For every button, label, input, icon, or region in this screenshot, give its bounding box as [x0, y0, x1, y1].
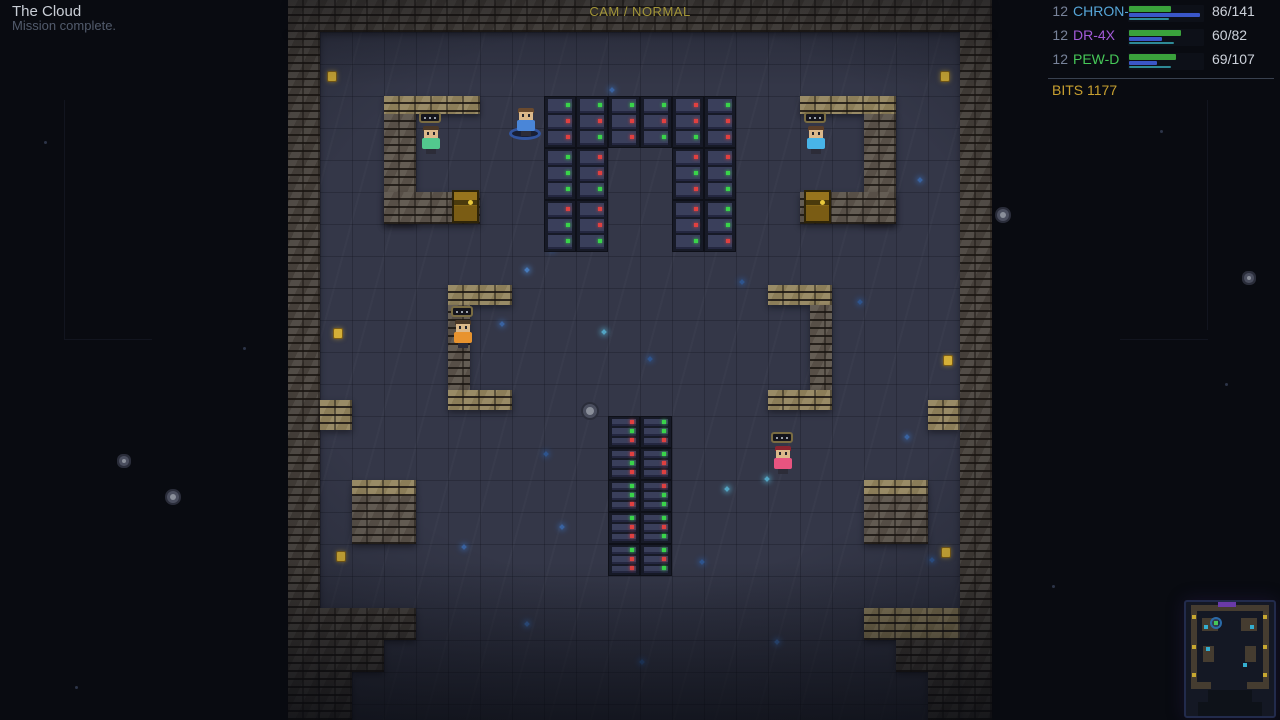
debris-rock [122, 459, 126, 463]
minimap-blip [1243, 663, 1247, 667]
server-slat [644, 534, 668, 541]
chest-band [806, 200, 829, 205]
status-led [566, 187, 570, 191]
background-star [1225, 383, 1228, 386]
server-slat [676, 235, 700, 249]
server-slat [548, 115, 572, 129]
server-slat [676, 219, 700, 233]
status-led [662, 484, 666, 488]
server-rack-unit[interactable] [544, 96, 576, 148]
floor-sparkle [739, 279, 745, 285]
chest-lock [820, 200, 825, 205]
status-led [630, 438, 634, 442]
crew-green[interactable] [418, 112, 444, 158]
character-face [424, 130, 438, 138]
supply-chest[interactable] [452, 190, 479, 223]
server-rack-unit[interactable] [608, 96, 640, 148]
status-led [662, 461, 666, 465]
server-slat [644, 524, 668, 531]
floor-sparkle [543, 451, 549, 457]
floor-sparkle [609, 87, 615, 93]
server-slat [676, 183, 700, 197]
character-torso [422, 138, 440, 149]
floor-sparkle [857, 299, 863, 305]
server-slat [612, 515, 636, 522]
server-slat [644, 99, 668, 113]
status-led [630, 420, 634, 424]
server-rack-unit[interactable] [640, 512, 672, 544]
status-led [630, 534, 634, 538]
status-led [630, 566, 634, 570]
floor-sparkle [639, 659, 645, 665]
stat-bar [1129, 42, 1174, 44]
status-led [662, 548, 666, 552]
server-slat [644, 483, 668, 490]
unit-hp: 86/141 [1212, 3, 1255, 19]
server-slat [548, 219, 572, 233]
status-led [662, 516, 666, 520]
status-led [630, 548, 634, 552]
status-led [694, 135, 698, 139]
status-led [598, 135, 602, 139]
server-slat [644, 470, 668, 477]
game-map[interactable] [288, 0, 992, 720]
server-rack-unit[interactable] [608, 416, 640, 448]
stat-bar [1129, 6, 1171, 12]
status-led [694, 103, 698, 107]
server-rack-unit[interactable] [704, 96, 736, 148]
brick-wall [928, 672, 960, 720]
background-star [1052, 585, 1055, 588]
minimap-void [1198, 702, 1262, 716]
status-led [726, 103, 730, 107]
status-led [630, 470, 634, 474]
debris-rock [586, 407, 594, 415]
party-row[interactable]: 12 DR-4X 60/82 [1048, 27, 1278, 49]
server-slat [676, 131, 700, 145]
status-led [726, 187, 730, 191]
server-slat [612, 438, 636, 445]
background-star [1160, 130, 1163, 133]
server-slat [612, 131, 636, 145]
server-slat [580, 115, 604, 129]
status-led [566, 239, 570, 243]
server-slat [548, 235, 572, 249]
server-slat [676, 115, 700, 129]
status-led [630, 502, 634, 506]
bits-counter: BITS 1177 [1052, 82, 1117, 98]
unit-level: 12 [1048, 27, 1068, 43]
floor-sparkle [917, 177, 923, 183]
server-rack-unit[interactable] [704, 148, 736, 200]
server-slat [548, 131, 572, 145]
server-rack-unit[interactable] [640, 416, 672, 448]
status-led [726, 119, 730, 123]
server-slat [644, 451, 668, 458]
brick-wall [864, 496, 928, 544]
server-slat [580, 151, 604, 165]
server-slat [580, 131, 604, 145]
brick-wall [320, 640, 384, 672]
server-slat [612, 556, 636, 563]
brick-wall [352, 480, 416, 496]
minimap-blip [1204, 625, 1208, 629]
server-slat [612, 502, 636, 509]
unit-name: DR-4X [1073, 27, 1115, 43]
brick-wall [352, 496, 416, 544]
status-led [630, 525, 634, 529]
minimap-player-marker [1210, 617, 1222, 629]
status-led [630, 103, 634, 107]
server-slat [708, 167, 732, 181]
background-star [243, 347, 246, 350]
server-slat [580, 167, 604, 181]
character-torso [774, 458, 792, 469]
server-slat [612, 566, 636, 573]
server-slat [580, 203, 604, 217]
server-slat [676, 99, 700, 113]
server-slat [580, 219, 604, 233]
character-torso [517, 120, 535, 131]
unit-name: PEW-D [1073, 51, 1119, 67]
server-rack-unit[interactable] [704, 200, 736, 252]
minimap-wall [1247, 682, 1269, 689]
status-led [566, 135, 570, 139]
server-slat [708, 219, 732, 233]
status-led [566, 103, 570, 107]
status-led [662, 119, 666, 123]
status-led [662, 452, 666, 456]
floor-sparkle [461, 544, 467, 550]
status-led [566, 207, 570, 211]
brick-wall [928, 400, 960, 430]
server-slat [612, 492, 636, 499]
minimap-wall [1191, 682, 1211, 689]
status-led [694, 239, 698, 243]
character-legs [778, 469, 788, 474]
server-slat [612, 460, 636, 467]
brick-wall [320, 400, 352, 430]
status-led [694, 207, 698, 211]
server-slat [708, 151, 732, 165]
character-torso [807, 138, 825, 149]
server-slat [708, 99, 732, 113]
brick-wall [864, 608, 960, 640]
status-led [662, 493, 666, 497]
server-slat [548, 183, 572, 197]
crew-pink[interactable] [770, 432, 796, 478]
server-slat [708, 131, 732, 145]
server-slat [644, 556, 668, 563]
unit-level: 12 [1048, 51, 1068, 67]
coin-pickup[interactable] [333, 328, 343, 339]
server-slat [612, 428, 636, 435]
status-led [598, 223, 602, 227]
unit-stat-bars [1128, 53, 1204, 70]
status-led [630, 493, 634, 497]
server-rack-unit[interactable] [576, 96, 608, 148]
server-rack-unit[interactable] [640, 96, 672, 148]
status-led [726, 135, 730, 139]
minimap-server-marker [1218, 602, 1236, 607]
backdrop-line [1207, 100, 1208, 330]
status-led [630, 135, 634, 139]
server-slat [708, 235, 732, 249]
server-slat [580, 183, 604, 197]
server-slat [612, 419, 636, 426]
brick-wall [896, 640, 960, 672]
status-led [694, 223, 698, 227]
character-legs [811, 149, 821, 154]
status-led [630, 452, 634, 456]
stat-bar [1129, 66, 1171, 68]
status-led [662, 470, 666, 474]
minimap-blip [1192, 645, 1196, 649]
status-led [566, 119, 570, 123]
server-rack-unit[interactable] [576, 148, 608, 200]
status-led [662, 429, 666, 433]
debris-rock [1247, 276, 1251, 280]
supply-chest[interactable] [804, 190, 831, 223]
server-rack-unit[interactable] [608, 512, 640, 544]
status-led [726, 207, 730, 211]
party-row[interactable]: 12 PEW-D 69/107 [1048, 51, 1278, 73]
brick-wall [768, 285, 832, 305]
stat-bar [1129, 30, 1181, 36]
background-star [44, 141, 47, 144]
status-led [662, 534, 666, 538]
server-slat [548, 151, 572, 165]
coin-pickup[interactable] [940, 71, 950, 82]
server-slat [644, 515, 668, 522]
floor-sparkle [764, 476, 770, 482]
character-face [809, 130, 823, 138]
floor-sparkle [699, 559, 705, 565]
server-slat [644, 438, 668, 445]
minimap-blip [1263, 673, 1267, 677]
coin-pickup[interactable] [327, 71, 337, 82]
status-led [694, 119, 698, 123]
debris-rock [170, 494, 176, 500]
hud-divider [1048, 78, 1274, 79]
floor-sparkle [524, 267, 530, 273]
server-slat [580, 99, 604, 113]
coin-pickup[interactable] [336, 551, 346, 562]
status-led [630, 119, 634, 123]
server-slat [708, 203, 732, 217]
floor-sparkle [499, 321, 505, 327]
minimap-wall [1245, 646, 1256, 662]
backdrop-line [64, 100, 65, 340]
backdrop-line [64, 339, 152, 340]
background-star [75, 686, 78, 689]
crew-orange[interactable] [450, 306, 476, 352]
stat-bar [1129, 54, 1176, 60]
server-slat [644, 566, 668, 573]
status-led [662, 420, 666, 424]
server-rack-unit[interactable] [608, 448, 640, 480]
coin-pickup[interactable] [941, 547, 951, 558]
minimap-blip [1263, 645, 1267, 649]
server-slat [644, 419, 668, 426]
server-rack-unit[interactable] [672, 200, 704, 252]
stat-bar [1129, 18, 1169, 20]
status-led [630, 484, 634, 488]
server-slat [612, 524, 636, 531]
server-rack-unit[interactable] [640, 480, 672, 512]
status-led [694, 187, 698, 191]
party-row[interactable]: 12 CHRON-B 86/141 [1048, 3, 1278, 25]
backdrop-line [1120, 339, 1208, 340]
server-slat [644, 428, 668, 435]
speech-bubble-icon [771, 432, 793, 443]
server-rack-unit[interactable] [672, 148, 704, 200]
floor-sparkle [929, 557, 935, 563]
status-led [598, 155, 602, 159]
brick-wall [320, 672, 352, 720]
unit-hp: 69/107 [1212, 51, 1255, 67]
server-slat [612, 534, 636, 541]
minimap-blip [1192, 615, 1196, 619]
minimap-blip [1263, 615, 1267, 619]
status-led [694, 155, 698, 159]
server-rack-unit[interactable] [608, 480, 640, 512]
character-legs [426, 149, 436, 154]
brick-wall [768, 390, 832, 410]
server-rack-unit[interactable] [608, 544, 640, 576]
server-slat [708, 115, 732, 129]
brick-wall [448, 390, 512, 410]
status-led [566, 171, 570, 175]
chest-band [454, 200, 477, 205]
server-rack-unit[interactable] [576, 200, 608, 252]
status-led [598, 239, 602, 243]
chest-lock [468, 200, 473, 205]
server-slat [676, 151, 700, 165]
unit-level: 12 [1048, 3, 1068, 19]
status-led [598, 171, 602, 175]
server-slat [548, 99, 572, 113]
floor-sparkle [524, 621, 530, 627]
status-led [662, 135, 666, 139]
minimap-blip [1250, 625, 1254, 629]
status-led [662, 525, 666, 529]
server-slat [612, 483, 636, 490]
unit-stat-bars [1128, 29, 1204, 46]
mission-status: Mission complete. [12, 18, 116, 33]
brick-wall [448, 285, 512, 305]
brick-wall [960, 32, 992, 720]
status-led [694, 171, 698, 175]
brick-wall [810, 305, 832, 391]
floor-sparkle [647, 356, 653, 362]
server-slat [676, 167, 700, 181]
speech-bubble-icon [804, 112, 826, 123]
unit-name: CHRON-B [1073, 3, 1130, 19]
status-led [726, 223, 730, 227]
server-slat [644, 115, 668, 129]
status-led [566, 155, 570, 159]
server-rack-unit[interactable] [544, 200, 576, 252]
server-slat [644, 460, 668, 467]
unit-hp: 60/82 [1212, 27, 1247, 43]
server-slat [644, 131, 668, 145]
stat-bar [1129, 61, 1157, 65]
coin-pickup[interactable] [943, 355, 953, 366]
floor-sparkle [724, 486, 730, 492]
server-slat [644, 547, 668, 554]
floor-sparkle [601, 329, 607, 335]
server-rack-unit[interactable] [640, 544, 672, 576]
status-led [566, 223, 570, 227]
status-led [662, 103, 666, 107]
character-torso [454, 332, 472, 343]
status-led [598, 207, 602, 211]
stat-bar [1129, 37, 1162, 41]
unit-stat-bars [1128, 5, 1204, 22]
server-slat [612, 470, 636, 477]
character-face [519, 112, 533, 120]
minimap-blip [1206, 647, 1210, 651]
character-face [776, 450, 790, 458]
floor-sparkle [559, 524, 565, 530]
status-led [726, 155, 730, 159]
status-led [662, 502, 666, 506]
server-slat [580, 235, 604, 249]
status-led [662, 566, 666, 570]
crew-blue[interactable] [513, 94, 539, 140]
server-slat [548, 167, 572, 181]
debris-rock [1000, 212, 1006, 218]
status-led [662, 557, 666, 561]
speech-bubble-icon [451, 306, 473, 317]
status-led [662, 438, 666, 442]
server-rack-unit[interactable] [640, 448, 672, 480]
floor-sparkle [774, 639, 780, 645]
minimap-blip [1192, 673, 1196, 677]
character-legs [458, 343, 468, 348]
minimap-wall [1241, 618, 1257, 631]
status-led [598, 187, 602, 191]
brick-wall [864, 480, 928, 496]
status-led [630, 516, 634, 520]
status-led [630, 557, 634, 561]
camera-mode-label: CAM / NORMAL [288, 4, 992, 19]
status-led [598, 103, 602, 107]
server-slat [612, 99, 636, 113]
speech-bubble-icon [419, 112, 441, 123]
crew-skyblue[interactable] [803, 112, 829, 158]
status-led [630, 429, 634, 433]
server-rack-unit[interactable] [672, 96, 704, 148]
status-led [598, 119, 602, 123]
server-slat [612, 547, 636, 554]
server-slat [644, 502, 668, 509]
server-slat [612, 451, 636, 458]
brick-wall [320, 608, 416, 640]
status-led [726, 171, 730, 175]
brick-wall [288, 32, 320, 720]
server-rack-unit[interactable] [544, 148, 576, 200]
stat-bar [1129, 13, 1200, 17]
floor-sparkle [904, 434, 910, 440]
minimap[interactable] [1184, 600, 1276, 718]
server-slat [548, 203, 572, 217]
server-slat [676, 203, 700, 217]
server-slat [644, 492, 668, 499]
status-led [726, 239, 730, 243]
character-legs [521, 131, 531, 136]
